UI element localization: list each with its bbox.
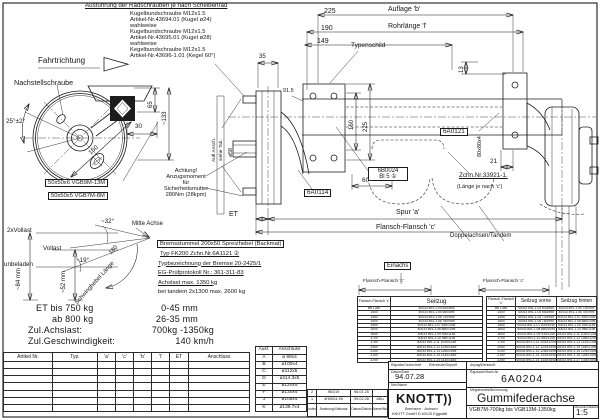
cell: 40033 891-1.15 1230/1445 bbox=[557, 349, 597, 353]
single-axle-label: Einachs bbox=[384, 262, 411, 270]
col-ausf-anschluss: Anschluss bbox=[273, 347, 307, 355]
brake-spec-line6: bei tandem 2x1300 max. 2600 kg bbox=[158, 289, 245, 295]
empty-cell bbox=[98, 362, 116, 369]
cable-row: 215040033 891-1.14 1330/154540033 891-1.… bbox=[487, 354, 597, 358]
empty-cell bbox=[98, 383, 116, 390]
cell: 96.01.25 bbox=[351, 390, 373, 397]
cell: ø 98x4 bbox=[273, 355, 307, 362]
cell: J bbox=[256, 397, 273, 404]
empty-cell bbox=[152, 369, 170, 376]
cable-row: bis 135040033 891-1.03 630/84540033 891-… bbox=[487, 307, 597, 311]
empty-cell bbox=[116, 369, 134, 376]
cell: 40033 891-1.03 630/845 bbox=[516, 307, 557, 311]
empty-cell bbox=[53, 404, 98, 411]
revision-row: 1 4H0024-95 95.02.28 ABu bbox=[308, 397, 388, 404]
right-swing-arm bbox=[527, 103, 550, 166]
cell: 40033 891-1.10 980/1195 bbox=[557, 328, 597, 332]
ausf-row: Aø 98x4 bbox=[256, 355, 307, 362]
cable-row: 140040033 891-1.04 680/89540033 891-1.06… bbox=[487, 311, 597, 315]
cell: 2250 bbox=[358, 358, 391, 362]
track-a-label: Spur 'a' bbox=[396, 209, 419, 216]
ausf-header-row: Ausf. Anschluss bbox=[256, 347, 307, 355]
cable-row: 165040033 891-1.09 930/114540033 891-1.1… bbox=[487, 332, 597, 336]
empty-row bbox=[4, 404, 250, 411]
dim-225-vertical: 225 bbox=[363, 122, 369, 132]
right-brake-drum bbox=[545, 100, 598, 292]
spec-label: Zul.Achslast: bbox=[28, 325, 82, 335]
empty-cell bbox=[170, 376, 189, 383]
dim-80x80x4: 80x80x4 bbox=[478, 136, 484, 157]
empty-cell bbox=[170, 383, 189, 390]
empty-row bbox=[4, 397, 250, 404]
empty-cell bbox=[4, 404, 53, 411]
dim-13: 13 bbox=[459, 66, 465, 73]
empty-cell bbox=[170, 397, 189, 404]
empty-cell bbox=[134, 397, 152, 404]
empty-cell bbox=[98, 376, 116, 383]
empty-cell bbox=[98, 404, 116, 411]
empty-cell bbox=[98, 369, 116, 376]
cell: ø130x4 bbox=[273, 390, 307, 397]
wheel-bolt-note-title: Ausführung der Radschrauben je nach Sche… bbox=[85, 3, 227, 10]
empty-cell bbox=[98, 390, 116, 397]
empty-cell bbox=[134, 390, 152, 397]
empty-cell bbox=[53, 390, 98, 397]
ausf-row: Kø139.7x4 bbox=[256, 404, 307, 411]
empty-cell bbox=[53, 397, 98, 404]
empty-row bbox=[4, 369, 250, 376]
drawing-ref-33921: Zchn.Nr.33921-1. bbox=[459, 173, 508, 180]
cell: B bbox=[256, 362, 273, 369]
empty-cell bbox=[4, 390, 53, 397]
spec-label: ab 800 kg bbox=[52, 314, 93, 324]
cell bbox=[373, 390, 388, 397]
spec-value: 700kg -1350kg bbox=[152, 325, 214, 335]
knott-logo: KNOTT)) bbox=[396, 392, 452, 406]
load-2x-label: 2xVollast bbox=[7, 228, 32, 235]
profile-label-small: 50x50x5 VGB7M-8M bbox=[48, 192, 108, 200]
divider bbox=[573, 405, 574, 418]
col-seilzug-vorne: Seilzug vorne bbox=[516, 297, 557, 307]
adjuster-screw-label: Nachstellschraube bbox=[14, 79, 73, 87]
col-seilzug-hinten: Seilzug hinten bbox=[557, 297, 597, 307]
title-block: Rajzolta/Gezeichnet Ellenőrizte/Geprüft … bbox=[388, 361, 599, 419]
divider bbox=[466, 362, 467, 418]
mount-note-line2: siehe Tab. bbox=[219, 139, 224, 161]
empty-cell bbox=[53, 362, 98, 369]
spec-value: 140 km/h bbox=[175, 336, 214, 346]
cell: F bbox=[256, 390, 273, 397]
checked-by-label: Ellenőrizte/Geprüft bbox=[429, 363, 457, 367]
col-b: 'b' bbox=[134, 353, 152, 362]
col-typ: Typ. bbox=[53, 353, 98, 362]
cell: 40033 891-1.06 780/995 bbox=[557, 311, 597, 315]
right-flange-plate bbox=[503, 73, 527, 149]
angle-32: ~32° bbox=[101, 219, 114, 226]
ausf-row: Dø114.3x5 bbox=[256, 376, 307, 383]
et-label: ET bbox=[229, 211, 238, 218]
empty-cell bbox=[4, 369, 53, 376]
empty-cell bbox=[152, 376, 170, 383]
empty-cell bbox=[189, 390, 250, 397]
spec-value: 26-35 mm bbox=[156, 314, 198, 324]
logo-address: KNOTT GmbH D 83125 Eggstätt bbox=[392, 412, 447, 416]
cell: C bbox=[256, 369, 273, 376]
brake-spec-line1: Bremsstummel 200x50 Spreizhebel (Backmat… bbox=[157, 240, 284, 248]
cell: K bbox=[256, 404, 273, 411]
divider bbox=[389, 389, 466, 390]
drawing-number-label: Rajzszám/Sach-Nr. bbox=[470, 370, 499, 374]
cable-row: 145040033 891-1.05 730/94540033 891-1.07… bbox=[487, 315, 597, 319]
cell: 4H0024-95 bbox=[317, 397, 351, 404]
cable-row: 155040033 891-1.07 830/104540033 891-1.0… bbox=[487, 324, 597, 328]
spec-et-range2: ab 800 kg 26-35 mm bbox=[52, 314, 198, 324]
empty-cell bbox=[189, 362, 250, 369]
empty-cell bbox=[170, 362, 189, 369]
drawn-by-label: Rajzolta/Gezeichnet bbox=[391, 363, 421, 367]
logo-marks: )) bbox=[443, 392, 452, 406]
cell: 40033 891-1.12 1080/1295 bbox=[557, 337, 597, 341]
cell: 40033 891-1.04 680/895 bbox=[516, 311, 557, 315]
angle-19: ~19° bbox=[76, 258, 89, 265]
logo-text: KNOTT bbox=[396, 391, 443, 406]
dim-65: 65 bbox=[148, 101, 154, 108]
cell: 40033 891-1.14 1330/1545 bbox=[516, 354, 557, 358]
cell: 40033 891-1.13 1280/1495 bbox=[516, 349, 557, 353]
dim-84mm: ~84 mm bbox=[16, 268, 22, 290]
cell: 1 bbox=[308, 397, 317, 404]
empty-row bbox=[4, 383, 250, 390]
spec-max-speed: Zul.Geschwindigkeit: 140 km/h bbox=[28, 336, 214, 346]
wheel-bolt-note-lines: Kugelbundschraube M12x1.5 Artikel-Nr.436… bbox=[130, 11, 215, 60]
profile-label-large: 50x50x6 VGB9M-13M bbox=[45, 179, 108, 187]
ausf-row: Fø130x4 bbox=[256, 390, 307, 397]
ausf-row: Bø100x4 bbox=[256, 362, 307, 369]
cable-row: 160040033 891-1.08 880/109540033 891-1.1… bbox=[487, 328, 597, 332]
dim-30: 30 bbox=[135, 124, 142, 131]
part-6b0024: 6B0024 Bl 5 ① bbox=[368, 167, 408, 182]
cell: 40033 891-1.09 930/1145 bbox=[557, 324, 597, 328]
cell: ABu bbox=[373, 397, 388, 404]
col-name: Name/Név bbox=[373, 404, 388, 417]
type-plate-label: Typenschild bbox=[351, 43, 385, 50]
revision-table: 2 96/319 96.01.25 1 4H0024-95 95.02.28 A… bbox=[307, 389, 388, 417]
empty-cell bbox=[116, 390, 134, 397]
empty-cell bbox=[134, 404, 152, 411]
cable-row: 210040033 891-1.13 1280/149540033 891-1.… bbox=[487, 349, 597, 353]
cell: ø114.3x5 bbox=[273, 376, 307, 383]
empty-cell bbox=[53, 383, 98, 390]
cable-row: 170040033 891-1.10 980/119540033 891-1.1… bbox=[487, 337, 597, 341]
spec-axle-load: Zul.Achslast: 700kg -1350kg bbox=[28, 325, 214, 335]
empty-cell bbox=[4, 376, 53, 383]
dim-35: 35 bbox=[259, 54, 266, 60]
part-6b0024-sheet: Bl 5 ① bbox=[371, 174, 405, 180]
artikel-header-row: Artikel Nr. Typ. 'a' 'c' 'b' 'l' ET Ansc… bbox=[4, 353, 250, 362]
drawing-sheet: Ausführung der Radschrauben je nach Sche… bbox=[0, 0, 600, 420]
cell: 40033 891-1.05 730/945 bbox=[557, 307, 597, 311]
ausf-row: Cø112x5 bbox=[256, 369, 307, 376]
tandem-label: Doppelachsen/Tandem bbox=[450, 233, 511, 239]
dimension-lines bbox=[22, 15, 576, 295]
cell: 40033 891-1.06 780/995 bbox=[516, 319, 557, 323]
cell: 40033 891-1.12 1230/1445 bbox=[516, 345, 557, 349]
empty-cell bbox=[53, 376, 98, 383]
artikel-table: Artikel Nr. Typ. 'a' 'c' 'b' 'l' ET Ansc… bbox=[3, 352, 250, 412]
cable-row: 205040033 891-1.12 1230/144540033 891-1.… bbox=[487, 345, 597, 349]
cell: 40033 891-1.10 980/1195 bbox=[516, 337, 557, 341]
warning-note: Achtung! Anzugsmoment für Sicherheitsmut… bbox=[152, 168, 220, 198]
empty-cell bbox=[116, 397, 134, 404]
brake-backplate-side-view bbox=[233, 86, 309, 210]
material-label: Anyag/Werkstoff: bbox=[470, 363, 496, 367]
col-l: 'l' bbox=[152, 353, 170, 362]
dim-21: 21 bbox=[490, 159, 497, 166]
empty-cell bbox=[152, 397, 170, 404]
direction-label: Fahrtrichtung bbox=[38, 57, 85, 65]
empty-cell bbox=[116, 383, 134, 390]
empty-cell bbox=[189, 383, 250, 390]
col-c: 'c' bbox=[116, 353, 134, 362]
empty-cell bbox=[189, 397, 250, 404]
col-anschluss: Anschluss bbox=[189, 353, 250, 362]
empty-cell bbox=[134, 383, 152, 390]
empty-cell bbox=[116, 362, 134, 369]
cell: 40033 891-1.08 880/1095 bbox=[516, 328, 557, 332]
dim-225: 225 bbox=[324, 8, 336, 15]
date-value: 94.07.28 bbox=[395, 373, 424, 381]
revision-footer-row: Index/Jel Änderung/Változás Datum/Dátum … bbox=[308, 404, 388, 417]
empty-cell bbox=[189, 376, 250, 383]
flange-c-label: Flansch-Flansch 'c' bbox=[376, 224, 435, 231]
tube-length-label: Rohrlänge 'l' bbox=[388, 23, 426, 30]
part-6a0114: 6A0114 bbox=[304, 189, 331, 198]
cell: E bbox=[256, 383, 273, 390]
empty-cell bbox=[134, 376, 152, 383]
cell: ø139.7x4 bbox=[273, 404, 307, 411]
axle-tube bbox=[228, 99, 596, 135]
empty-cell bbox=[4, 383, 53, 390]
col-ausf: Ausf. bbox=[256, 347, 273, 355]
cell: 40033 891-1.13 1130/1345 bbox=[557, 341, 597, 345]
cable-row: 150040033 891-1.06 780/99540033 891-1.08… bbox=[487, 319, 597, 323]
empty-cell bbox=[170, 369, 189, 376]
type-range: VGB7M-700kg bis VGB13M-1350kg bbox=[469, 408, 556, 414]
col-seilzug: Seilzug bbox=[391, 297, 483, 307]
dim-133: ~133 bbox=[162, 111, 168, 125]
empty-row bbox=[4, 362, 250, 369]
cell: ø112x5 bbox=[273, 369, 307, 376]
dim-160-vertical: 160 bbox=[349, 120, 355, 130]
cell: ø120x5 bbox=[273, 383, 307, 390]
empty-cell bbox=[134, 369, 152, 376]
cable-table-single: Flansch-Flansch 'c' Seilzug bis 13504003… bbox=[357, 296, 483, 363]
cell: 40033 891-1.08 880/1095 bbox=[557, 319, 597, 323]
note-line: Artikel-Nr.43694.01 (Kugel ø24) bbox=[130, 17, 215, 23]
warning-line: 280Nm (28kpm) bbox=[152, 192, 220, 198]
cell: 40033 891-1.16 1280/1495 bbox=[557, 354, 597, 358]
note-line: Kugelbundschraube M12x1.5 bbox=[130, 11, 215, 17]
brake-spec-line3: Typbezeichnung der Bremse 20-2425/1 bbox=[158, 261, 261, 267]
empty-cell bbox=[152, 390, 170, 397]
flange-mini-label-right: Flansch-Flansch 'c' bbox=[483, 279, 524, 284]
brake-spec-line4: EG-Prüfprotokoll Nr.: 361-311-83 bbox=[158, 270, 244, 276]
axle-center-label: Mitte Achse bbox=[132, 221, 163, 227]
cell: 96/319 bbox=[317, 390, 351, 397]
cell: 40033 891-1.11 1030/1245 bbox=[516, 341, 557, 345]
dim-190: 190 bbox=[321, 25, 333, 32]
ausf-row: Eø120x5 bbox=[256, 383, 307, 390]
angle-25: 25°±2° bbox=[6, 119, 25, 126]
revision-row: 2 96/319 96.01.25 bbox=[308, 390, 388, 397]
support-b-label: Auflage 'b' bbox=[388, 6, 420, 13]
empty-cell bbox=[189, 369, 250, 376]
col-flansch-c: Flansch-Flansch 'c' bbox=[358, 297, 391, 307]
length-per-c-note: (Länge je nach 'c') bbox=[457, 185, 502, 191]
cell: ø108x4 bbox=[273, 397, 307, 404]
suspension-bracket bbox=[88, 86, 152, 121]
empty-cell bbox=[170, 390, 189, 397]
cell: 40033 891-1.14 1180/1395 bbox=[557, 345, 597, 349]
cell: D bbox=[256, 376, 273, 383]
part-6a0121: 6A0121 bbox=[440, 128, 468, 137]
ausfuehrung-table: Ausf. Anschluss Aø 98x4 Bø100x4 Cø112x5 … bbox=[255, 346, 307, 412]
col-et: ET bbox=[170, 353, 189, 362]
spec-label: Zul.Geschwindigkeit: bbox=[28, 336, 115, 346]
spec-value: 0-45 mm bbox=[161, 303, 198, 313]
dim-d58: ø58 bbox=[229, 148, 235, 157]
empty-cell bbox=[152, 404, 170, 411]
empty-cell bbox=[116, 404, 134, 411]
cell: 40033 891-1.09 930/1145 bbox=[516, 332, 557, 336]
empty-cell bbox=[134, 362, 152, 369]
col-flansch-c: Flansch-Flansch 'c' bbox=[487, 297, 516, 307]
dim-52mm: ~52 mm bbox=[61, 271, 67, 293]
cable-row: 175040033 891-1.11 1030/124540033 891-1.… bbox=[487, 341, 597, 345]
note-line: Artikel-Nr.43696-1.01 (Kegel 60°) bbox=[130, 53, 215, 59]
name-label: Név/Name bbox=[391, 383, 407, 387]
col-artikel-nr: Artikel Nr. bbox=[4, 353, 53, 362]
spec-label: ET bis 750 kg bbox=[36, 303, 93, 313]
empty-cell bbox=[116, 376, 134, 383]
cell: ø100x4 bbox=[273, 362, 307, 369]
col-datum: Datum/Dátum bbox=[351, 404, 373, 417]
cell: 40033 891-1.05 730/945 bbox=[516, 315, 557, 319]
col-aenderung: Änderung/Változás bbox=[317, 404, 351, 417]
drawing-number: 6A0204 bbox=[501, 374, 543, 385]
logo-subtitle: Bremsen · Achsen bbox=[405, 406, 438, 411]
empty-row bbox=[4, 376, 250, 383]
flange-mini-label-left: Flansch-Flansch 'c' bbox=[363, 279, 404, 284]
cell: A bbox=[256, 355, 273, 362]
empty-cell bbox=[170, 404, 189, 411]
col-a: 'a' bbox=[98, 353, 116, 362]
empty-cell bbox=[152, 362, 170, 369]
cell: 40033 891-1.07 830/1045 bbox=[557, 315, 597, 319]
scale-value: 1:5 bbox=[576, 408, 588, 417]
cell: 40033 891-1.11 1030/1245 bbox=[557, 332, 597, 336]
cable-single-header: Flansch-Flansch 'c' Seilzug bbox=[358, 297, 483, 307]
load-full-label: Vollast bbox=[43, 246, 61, 253]
mount-note-line1: Aufl.Ansch. bbox=[212, 138, 217, 162]
empty-cell bbox=[152, 383, 170, 390]
empty-cell bbox=[4, 362, 53, 369]
spec-et-range1: ET bis 750 kg 0-45 mm bbox=[36, 303, 198, 313]
cable-tandem-header: Flansch-Flansch 'c' Seilzug vorne Seilzu… bbox=[487, 297, 597, 307]
cell: 2 bbox=[308, 390, 317, 397]
empty-cell bbox=[98, 397, 116, 404]
col-index: Index/Jel bbox=[308, 404, 317, 417]
cell: 95.02.28 bbox=[351, 397, 373, 404]
left-flange-plate bbox=[303, 84, 345, 172]
dim-91-5: 91.5 bbox=[283, 89, 294, 95]
ausf-row: Jø108x4 bbox=[256, 397, 307, 404]
dim-149: 149 bbox=[317, 38, 329, 45]
empty-cell bbox=[189, 404, 250, 411]
drawing-title: Gummifederachse bbox=[477, 392, 575, 405]
empty-cell bbox=[53, 369, 98, 376]
cell: 40033 891-1.07 830/1045 bbox=[516, 324, 557, 328]
cable-table-tandem: Flansch-Flansch 'c' Seilzug vorne Seilzu… bbox=[486, 296, 597, 363]
brake-spec-line5: Achslast max. 1350 kg bbox=[158, 280, 217, 286]
empty-row bbox=[4, 390, 250, 397]
brake-spec-line2: Typ FK200 Zchn.Nr.6A1121 ② bbox=[160, 251, 239, 257]
empty-cell bbox=[4, 397, 53, 404]
